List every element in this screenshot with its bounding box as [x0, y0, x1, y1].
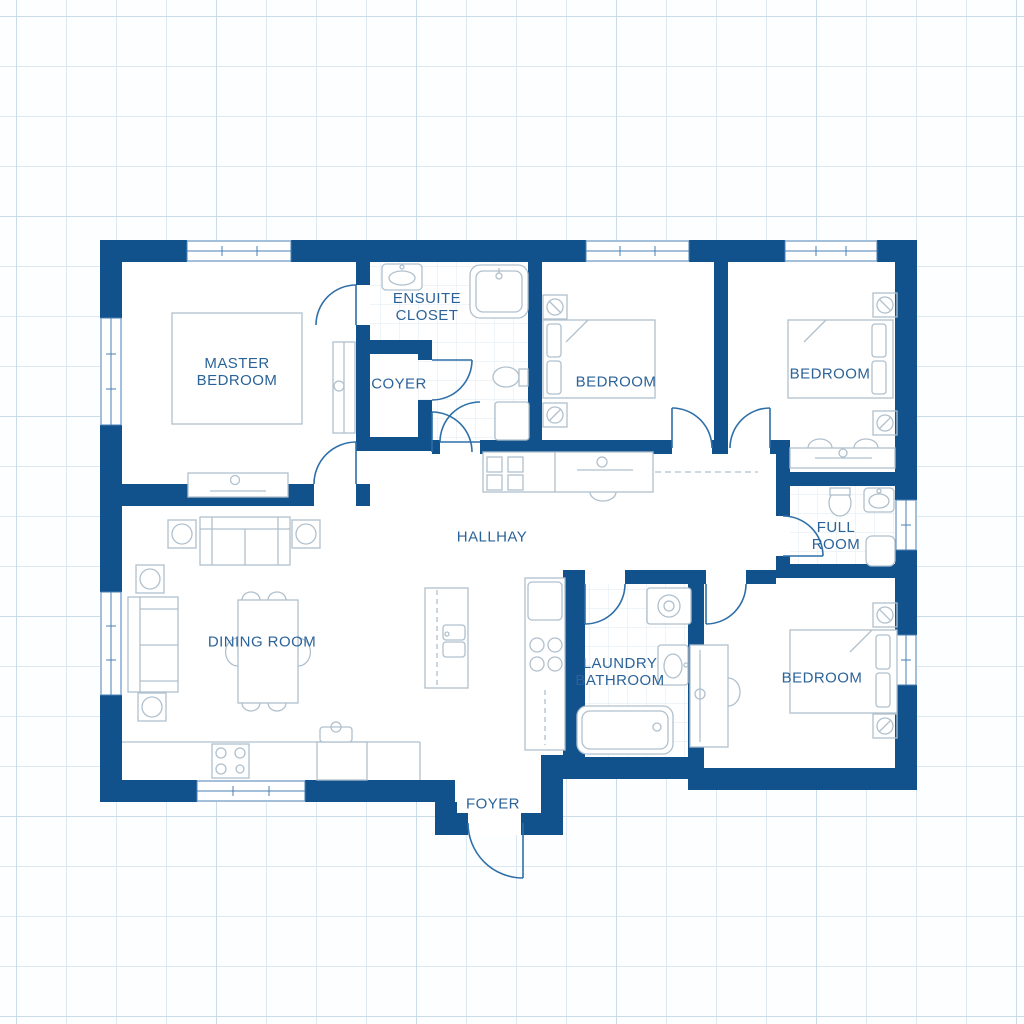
room-label-bedroom-top-middle: BEDROOM [576, 373, 657, 390]
blueprint-canvas: MASTER BEDROOM ENSUITE CLOSET COYER BEDR… [0, 0, 1024, 1024]
full-room-sink [864, 488, 894, 512]
room-label-ensuite-closet: ENSUITE CLOSET [393, 290, 461, 324]
master-dresser [188, 473, 288, 497]
bathtub [577, 706, 673, 754]
room-label-bedroom-top-right: BEDROOM [790, 365, 871, 382]
window-right-bedroom-c [896, 635, 916, 685]
window-top-bedroom-b [785, 241, 877, 261]
room-label-hallway: HALLHAY [457, 528, 527, 545]
dining-sofa [200, 517, 290, 565]
stove [212, 744, 249, 778]
ensuite-sink [382, 264, 422, 290]
window-top-master [187, 241, 291, 261]
ensuite-shower [470, 265, 528, 318]
full-room-shower-seat [866, 536, 895, 566]
window-bottom-kitchen [197, 781, 305, 801]
dining-couch [128, 597, 178, 692]
kitchen-island [425, 588, 468, 688]
window-left-master [101, 318, 121, 425]
kitchen-counter-right [525, 578, 565, 750]
room-label-foyer: FOYER [466, 795, 520, 812]
room-label-full-room: FULL ROOM [812, 519, 860, 553]
master-tall-dresser [333, 342, 355, 433]
dining-table [226, 592, 311, 711]
window-right-full-room [896, 500, 916, 550]
window-left-dining [101, 592, 121, 695]
ensuite-toilet [493, 367, 528, 387]
room-label-laundry-bathroom: LAUNDRY BATHROOM [575, 655, 664, 689]
window-top-bedroom-a [586, 241, 689, 261]
full-room-toilet [829, 488, 851, 516]
ensuite-cabinet [495, 402, 529, 440]
bedroom-b-bed [788, 320, 893, 398]
room-label-bedroom-bottom-right: BEDROOM [782, 669, 863, 686]
floor-plan-drawing [0, 0, 1024, 1024]
room-label-dining-room: DINING ROOM [208, 633, 316, 650]
room-label-master-bedroom: MASTER BEDROOM [197, 355, 278, 389]
washer [647, 588, 691, 624]
room-label-coyer: COYER [371, 375, 427, 392]
